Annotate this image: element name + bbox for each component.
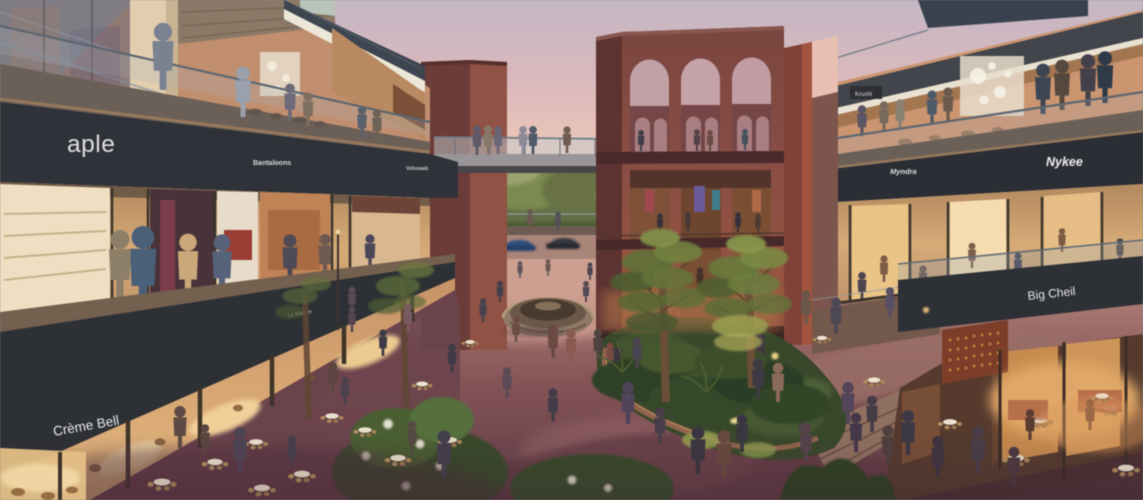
svg-text:Vebsaab: Vebsaab xyxy=(406,166,429,172)
svg-text:Nykee: Nykee xyxy=(1046,155,1083,169)
svg-text:Krushi: Krushi xyxy=(855,92,872,98)
svg-text:Myndra: Myndra xyxy=(890,167,917,176)
svg-text:Bantaloons: Bantaloons xyxy=(253,160,291,167)
svg-text:aple: aple xyxy=(67,131,115,158)
